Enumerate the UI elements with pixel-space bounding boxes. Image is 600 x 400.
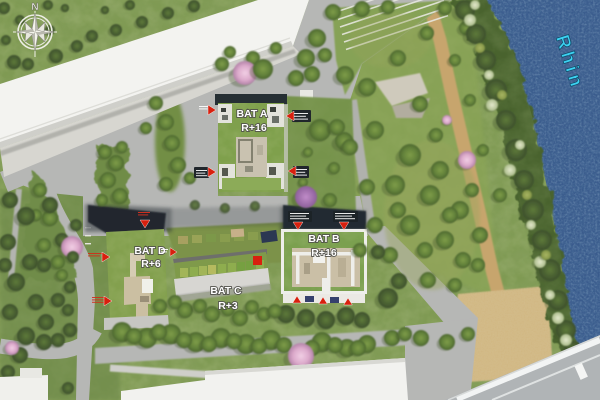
svg-text:R+16: R+16 [241, 122, 267, 134]
svg-text:BAT C: BAT C [210, 285, 242, 297]
svg-text:R+6: R+6 [141, 258, 161, 270]
svg-text:BAT D: BAT D [134, 245, 166, 257]
svg-text:R+3: R+3 [218, 300, 238, 312]
svg-text:N: N [31, 2, 38, 13]
svg-text:BAT A: BAT A [237, 108, 268, 120]
svg-text:BAT B: BAT B [308, 233, 340, 245]
svg-text:R+16: R+16 [311, 247, 337, 259]
